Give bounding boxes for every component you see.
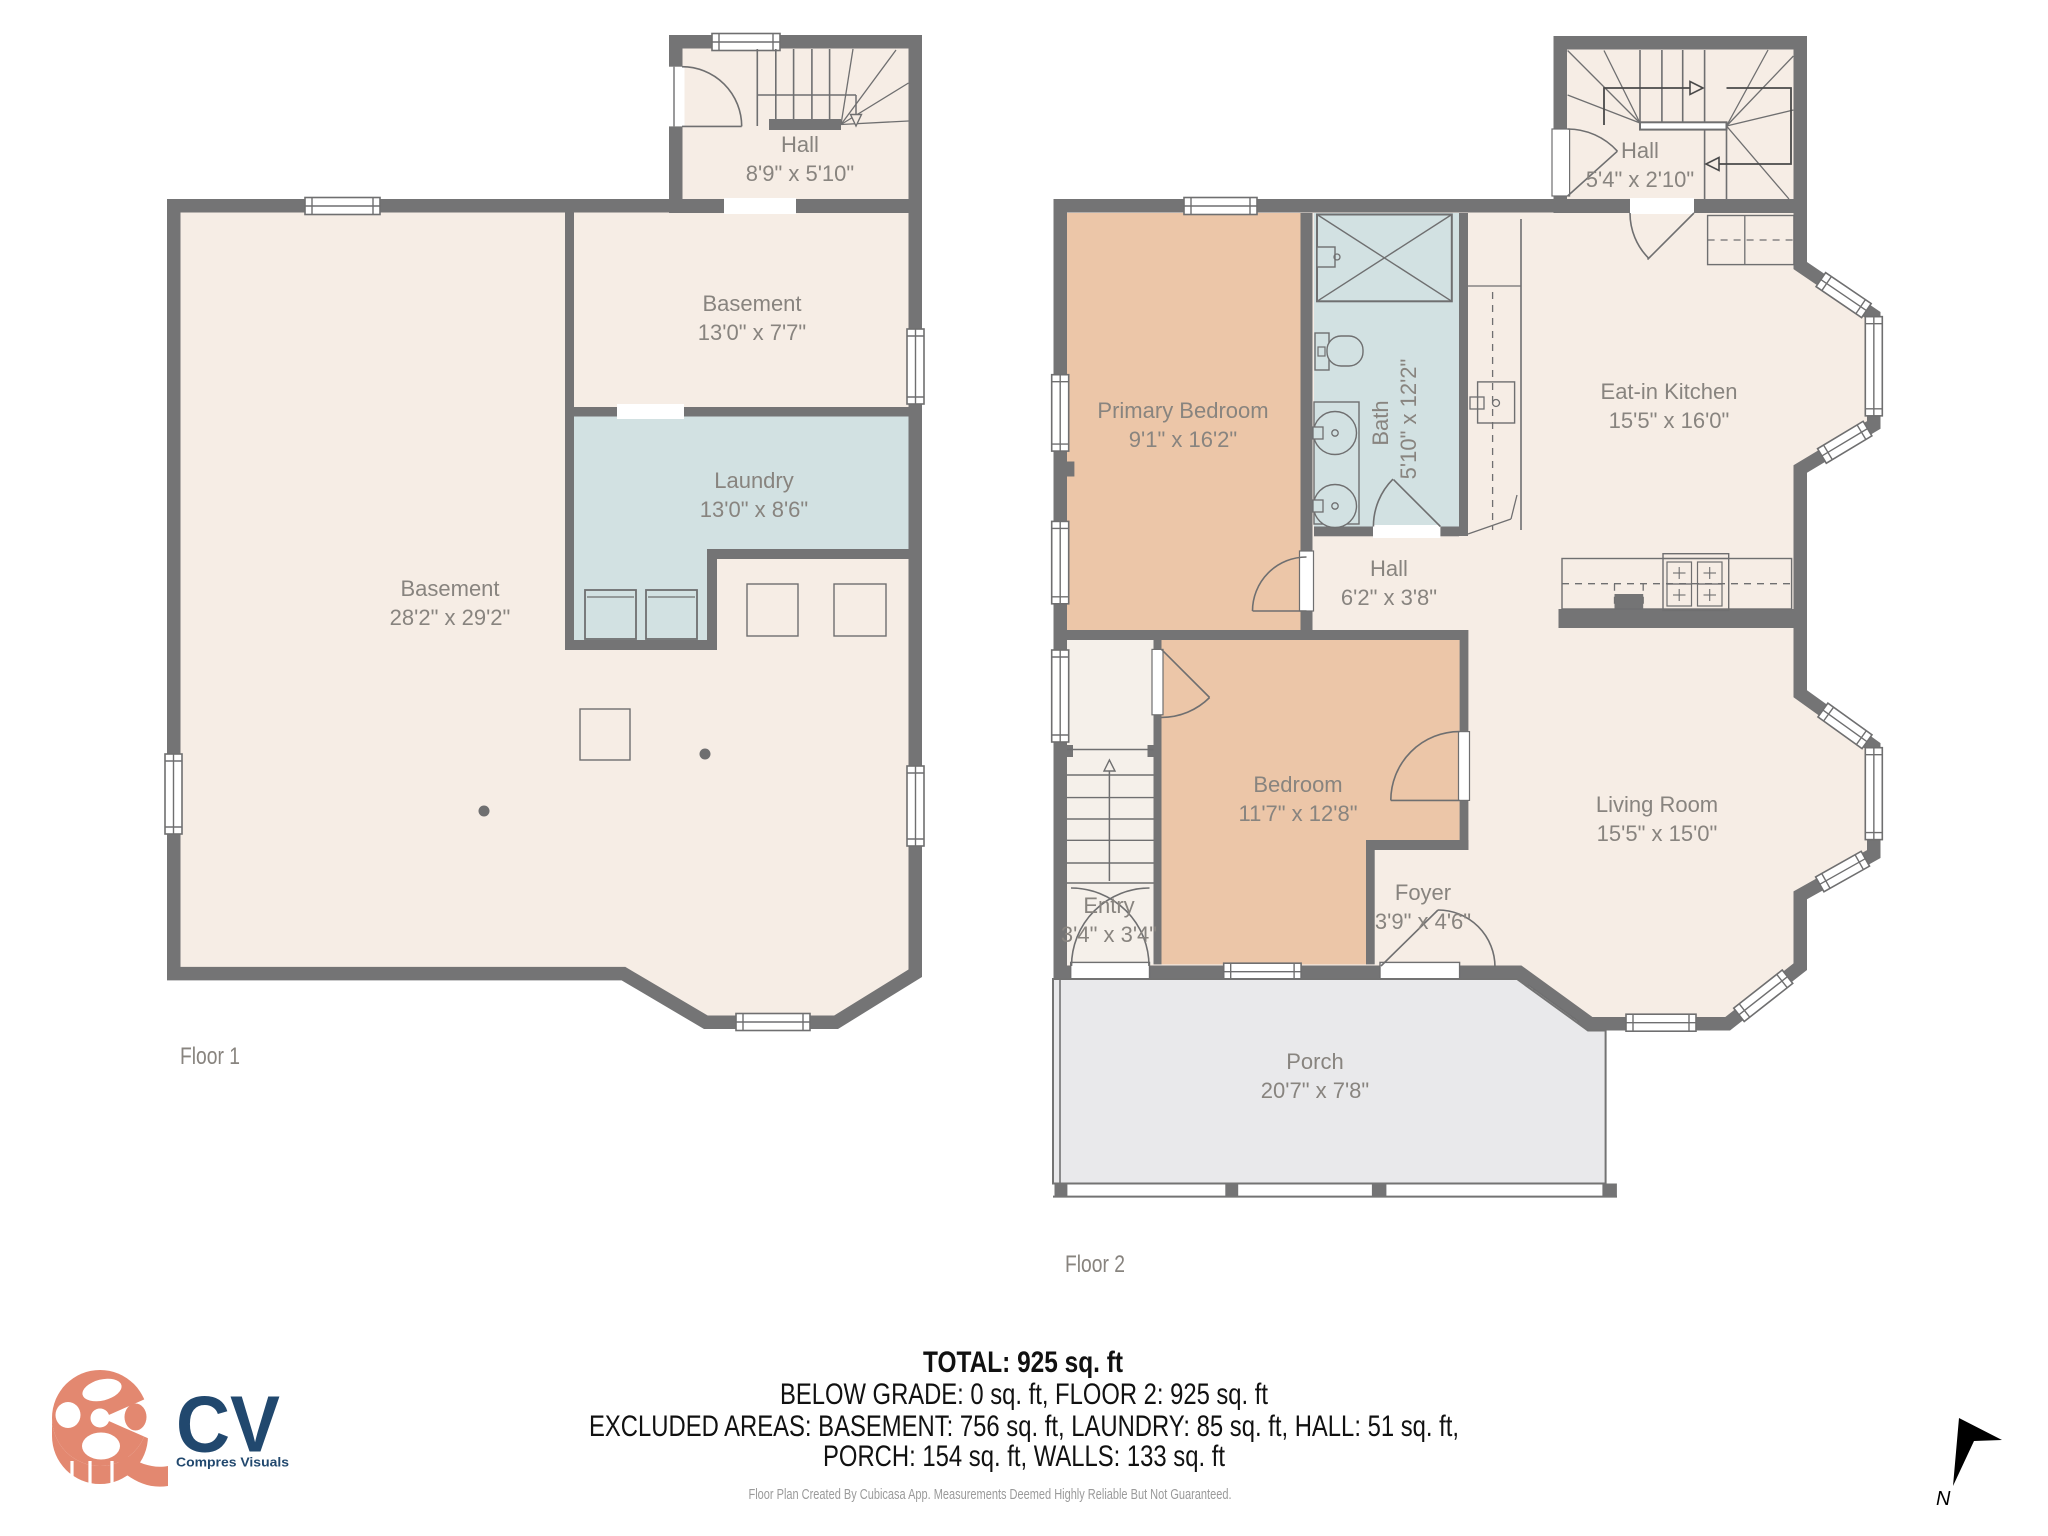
- svg-text:13'0" x 8'6": 13'0" x 8'6": [700, 497, 808, 522]
- svg-text:13'0" x 7'7": 13'0" x 7'7": [698, 320, 806, 345]
- svg-text:BELOW GRADE: 0 sq. ft, FLOOR 2: BELOW GRADE: 0 sq. ft, FLOOR 2: 925 sq. …: [780, 1378, 1269, 1411]
- svg-text:Laundry: Laundry: [714, 468, 794, 493]
- svg-text:Bedroom: Bedroom: [1253, 772, 1342, 797]
- svg-text:Floor Plan Created By Cubicasa: Floor Plan Created By Cubicasa App. Meas…: [749, 1487, 1232, 1503]
- svg-text:Bath: Bath: [1368, 400, 1393, 445]
- svg-text:20'7" x 7'8": 20'7" x 7'8": [1261, 1078, 1369, 1103]
- svg-text:Foyer: Foyer: [1395, 880, 1451, 905]
- svg-text:Primary Bedroom: Primary Bedroom: [1097, 398, 1268, 423]
- svg-text:9'1" x 16'2": 9'1" x 16'2": [1129, 427, 1237, 452]
- svg-text:Basement: Basement: [400, 576, 499, 601]
- svg-text:6'2" x 3'8": 6'2" x 3'8": [1341, 585, 1437, 610]
- svg-text:3'9" x 4'6": 3'9" x 4'6": [1375, 909, 1471, 934]
- svg-text:11'7" x 12'8": 11'7" x 12'8": [1238, 801, 1357, 826]
- svg-text:8'9" x 5'10": 8'9" x 5'10": [746, 161, 854, 186]
- svg-text:Entry: Entry: [1083, 893, 1134, 918]
- svg-text:5'10" x 12'2": 5'10" x 12'2": [1396, 359, 1421, 480]
- svg-text:3'4" x 3'4": 3'4" x 3'4": [1061, 922, 1157, 947]
- svg-text:Hall: Hall: [781, 132, 819, 157]
- svg-text:Floor 1: Floor 1: [180, 1043, 240, 1070]
- svg-text:Hall: Hall: [1621, 138, 1659, 163]
- svg-text:TOTAL: 925 sq. ft: TOTAL: 925 sq. ft: [923, 1346, 1123, 1379]
- svg-text:N: N: [1936, 1488, 1951, 1510]
- svg-text:15'5" x 15'0": 15'5" x 15'0": [1597, 821, 1718, 846]
- svg-text:Porch: Porch: [1286, 1049, 1343, 1074]
- svg-text:15'5" x 16'0": 15'5" x 16'0": [1609, 408, 1730, 433]
- svg-text:PORCH: 154 sq. ft, WALLS: 133: PORCH: 154 sq. ft, WALLS: 133 sq. ft: [823, 1440, 1226, 1473]
- svg-text:5'4" x 2'10": 5'4" x 2'10": [1586, 167, 1694, 192]
- svg-text:Hall: Hall: [1370, 556, 1408, 581]
- svg-text:28'2" x 29'2": 28'2" x 29'2": [390, 605, 511, 630]
- svg-text:Basement: Basement: [702, 291, 801, 316]
- svg-text:Floor 2: Floor 2: [1065, 1251, 1125, 1278]
- svg-text:Eat-in Kitchen: Eat-in Kitchen: [1601, 379, 1738, 404]
- svg-text:EXCLUDED AREAS: BASEMENT: 756: EXCLUDED AREAS: BASEMENT: 756 sq. ft, LA…: [589, 1410, 1459, 1443]
- svg-text:Compres Visuals: Compres Visuals: [176, 1456, 289, 1470]
- svg-text:Living Room: Living Room: [1596, 792, 1718, 817]
